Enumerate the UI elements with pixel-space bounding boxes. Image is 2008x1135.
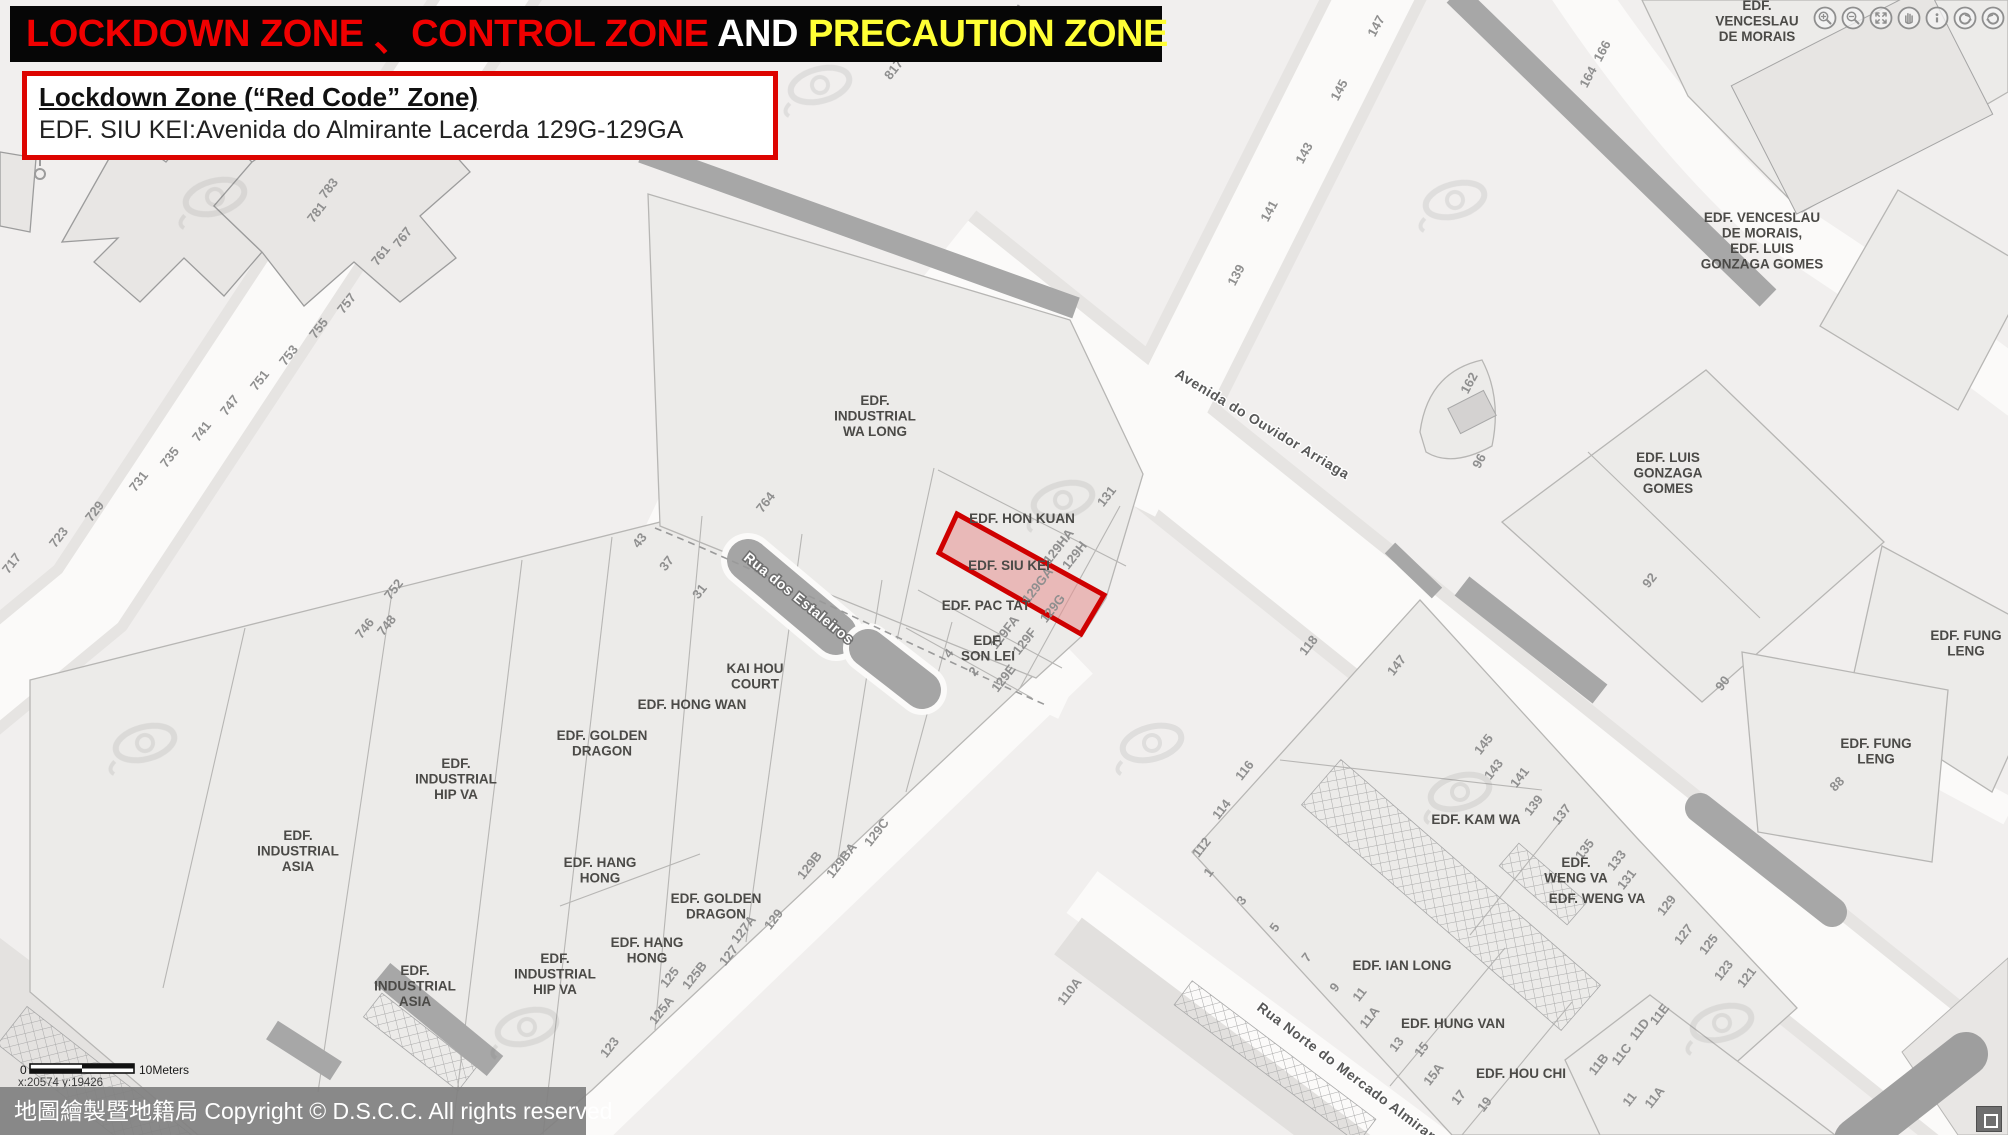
banner-segment: AND xyxy=(708,13,808,56)
building-label: EDF. HOU CHI xyxy=(1476,1066,1566,1081)
next-extent-icon[interactable] xyxy=(1983,8,2004,29)
map-viewer: 7177237297317357417477517537557577617677… xyxy=(0,0,2008,1135)
building-label: EDF. HUNG VAN xyxy=(1401,1016,1505,1031)
banner-segment: CONTROL ZONE xyxy=(411,13,708,56)
building-label: EDF. PAC TAT xyxy=(942,598,1031,613)
zoom-out-icon[interactable] xyxy=(1843,8,1864,29)
info-box-title: Lockdown Zone (“Red Code” Zone) xyxy=(39,82,759,113)
zoom-in-icon[interactable] xyxy=(1815,8,1836,29)
map-canvas[interactable]: 7177237297317357417477517537557577617677… xyxy=(0,0,2008,1135)
toggle-icon xyxy=(1984,1114,1998,1128)
identify-icon[interactable] xyxy=(1927,8,1948,29)
banner-segment: 、 xyxy=(364,7,412,62)
lockdown-info-box: Lockdown Zone (“Red Code” Zone) EDF. SIU… xyxy=(22,71,778,160)
attribution-toggle-button[interactable] xyxy=(1976,1106,2002,1132)
banner: LOCKDOWN ZONE 、CONTROL ZONE AND PRECAUTI… xyxy=(10,6,1162,62)
copyright-bar: 地圖繪製暨地籍局 Copyright © D.S.C.C. All rights… xyxy=(0,1087,586,1135)
scale-zero: 0 xyxy=(20,1063,27,1077)
previous-extent-icon[interactable] xyxy=(1955,8,1976,29)
banner-segment: LOCKDOWN ZONE xyxy=(26,13,364,56)
info-box-address: EDF. SIU KEI:Avenida do Almirante Lacerd… xyxy=(39,116,759,145)
full-extent-icon[interactable] xyxy=(1871,8,1892,29)
building-label: EDF. HONG WAN xyxy=(638,697,747,712)
building-label: EDF. KAM WA xyxy=(1431,812,1520,827)
banner-segment: PRECAUTION ZONE xyxy=(808,13,1168,56)
building-label: EDF. SIU KEI xyxy=(968,558,1050,573)
pan-icon[interactable] xyxy=(1899,8,1920,29)
building-label: EDF. HON KUAN xyxy=(969,511,1075,526)
scale-label: 10Meters xyxy=(139,1063,189,1077)
building-label: EDF. WENG VA xyxy=(1549,891,1646,906)
building-label: KAI HOUCOURT xyxy=(727,661,784,692)
building-label: EDF. LUISGONZAGAGOMES xyxy=(1634,450,1703,496)
building-label: EDF. IAN LONG xyxy=(1352,958,1451,973)
